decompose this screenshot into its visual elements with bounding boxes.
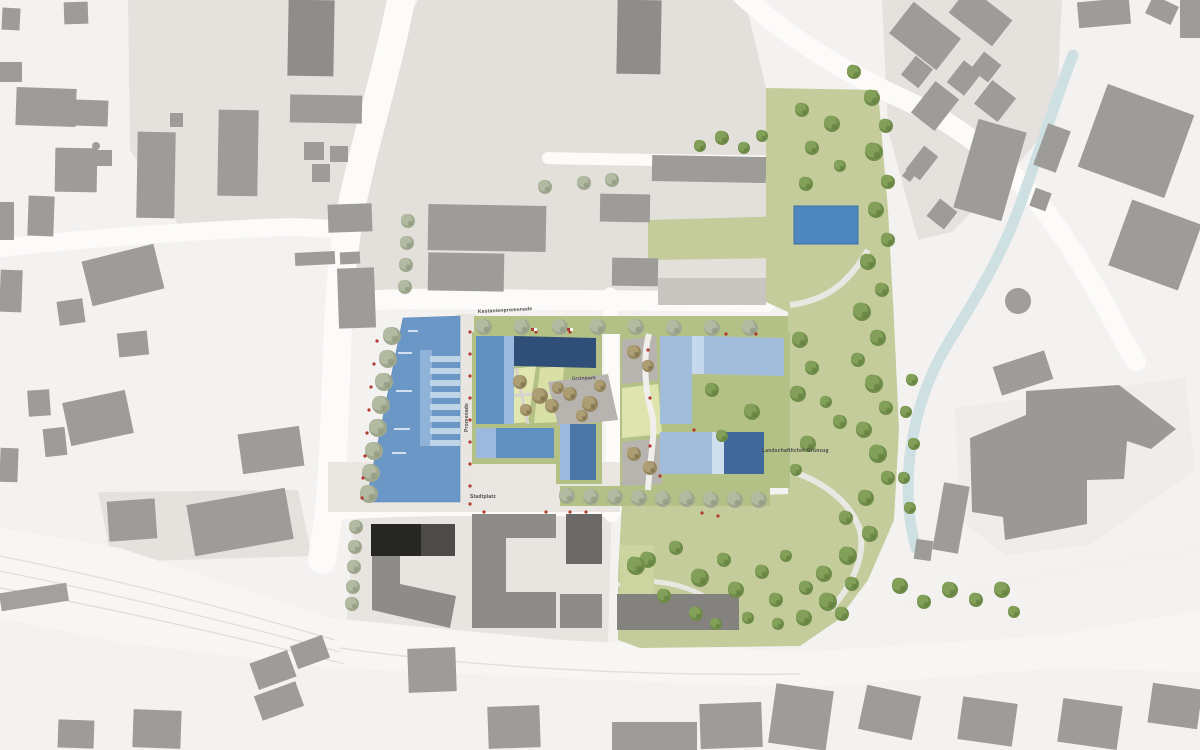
street-tree	[369, 419, 387, 437]
context-building	[337, 267, 376, 328]
street-tree	[401, 214, 415, 228]
street-tree	[400, 236, 414, 250]
context-building	[70, 99, 109, 126]
red-marker-dot	[700, 511, 703, 514]
context-building	[914, 539, 934, 561]
street-tree	[655, 491, 671, 507]
courtyard-tree	[642, 360, 654, 372]
context-building	[55, 148, 98, 193]
street-tree	[365, 442, 383, 460]
street-tree	[559, 488, 575, 504]
context-building	[290, 94, 362, 123]
context-building	[58, 719, 95, 748]
red-marker-dot	[468, 502, 471, 505]
street-tree	[345, 597, 359, 611]
context-building	[612, 722, 697, 750]
street-tree	[628, 319, 644, 335]
courtyard-tree	[576, 410, 588, 422]
red-marker-dot	[468, 440, 471, 443]
street-tree	[605, 173, 619, 187]
street-tree	[372, 396, 390, 414]
light-blue-l-building	[660, 336, 692, 424]
context-building	[658, 278, 766, 305]
red-marker-dot	[468, 352, 471, 355]
context-building	[487, 705, 540, 749]
courtyard-tree	[643, 461, 657, 475]
red-marker-dot	[361, 476, 364, 479]
context-building	[1077, 0, 1131, 28]
red-marker-dot	[544, 510, 547, 513]
context-building	[428, 252, 505, 291]
street-tree	[590, 319, 606, 335]
context-building	[27, 196, 54, 237]
courtyard-tree	[552, 382, 564, 394]
street-tree	[666, 320, 682, 336]
red-marker-dot	[716, 514, 719, 517]
street-tree	[398, 280, 412, 294]
street-tree	[727, 492, 743, 508]
context-building	[328, 203, 373, 233]
context-building	[170, 113, 183, 127]
red-marker-dot	[375, 339, 378, 342]
context-building	[616, 0, 661, 74]
context-building	[0, 62, 22, 82]
red-marker-dot	[658, 474, 661, 477]
context-building	[96, 150, 112, 166]
courtyard-tree	[627, 447, 641, 461]
courtyard-tree	[520, 404, 532, 416]
street-tree	[476, 319, 492, 335]
context-building	[1057, 698, 1123, 750]
courtyard-tree	[627, 345, 641, 359]
context-building	[287, 0, 334, 76]
street-tree	[703, 492, 719, 508]
street-tree	[583, 489, 599, 505]
red-marker-dot	[367, 408, 370, 411]
site-plan-canvas: Kastanienpromenade Promenade Grünpark La…	[0, 0, 1200, 750]
street-tree	[552, 319, 568, 335]
context-building	[652, 155, 766, 183]
context-building	[0, 270, 23, 313]
street-tree	[514, 319, 530, 335]
red-marker-dot	[482, 510, 485, 513]
street-tree	[538, 180, 552, 194]
context-building	[15, 87, 76, 127]
context-building	[699, 702, 763, 749]
red-marker-dot	[648, 444, 651, 447]
courtyard-tree	[594, 380, 606, 392]
red-marker-dot	[646, 348, 649, 351]
street-tree	[375, 373, 393, 391]
context-building	[132, 709, 181, 749]
street-tree	[383, 327, 401, 345]
street-tree	[346, 580, 360, 594]
context-building	[768, 683, 834, 750]
courtyard-tree	[582, 396, 598, 412]
red-marker-dot	[724, 332, 727, 335]
street-tree	[751, 492, 767, 508]
context-building	[27, 389, 51, 416]
red-marker-dot	[360, 496, 363, 499]
context-building	[238, 426, 305, 474]
label-south-plaza: Stadtplatz	[470, 494, 496, 500]
context-building	[0, 202, 14, 240]
red-marker-dot	[369, 385, 372, 388]
context-building	[64, 2, 89, 25]
street-tree	[349, 520, 363, 534]
red-marker-dot	[365, 431, 368, 434]
courtyard-tree	[545, 399, 559, 413]
context-building	[612, 258, 658, 287]
context-building	[295, 251, 336, 266]
context-building	[340, 251, 361, 264]
street-tree	[347, 560, 361, 574]
navy-building	[514, 336, 596, 368]
context-building	[407, 647, 457, 693]
courtyard-tree	[532, 388, 548, 404]
street-tree	[362, 464, 380, 482]
red-marker-dot	[468, 396, 471, 399]
context-building	[957, 696, 1017, 746]
street-tree	[348, 540, 362, 554]
red-marker-dot	[692, 428, 695, 431]
context-building	[312, 164, 330, 182]
street-tree	[607, 489, 623, 505]
context-building	[600, 194, 650, 223]
black-building	[371, 524, 421, 556]
context-building	[1147, 683, 1200, 730]
red-marker-dot	[468, 484, 471, 487]
context-building	[136, 132, 175, 219]
courtyard-tree	[513, 375, 527, 389]
red-marker-dot	[648, 396, 651, 399]
street-tree	[631, 490, 647, 506]
roundabout	[1005, 288, 1031, 314]
street-tree	[399, 258, 413, 272]
street-tree	[577, 176, 591, 190]
red-marker-dot	[568, 510, 571, 513]
street-tree	[360, 485, 378, 503]
street-tree	[704, 320, 720, 336]
courtyard-tree	[563, 387, 577, 401]
context-building	[428, 204, 547, 252]
context-building	[330, 146, 348, 162]
context-building	[43, 427, 68, 457]
site-plan-map: Kastanienpromenade Promenade Grünpark La…	[0, 0, 1200, 750]
context-building	[0, 448, 19, 483]
label-central-courtyard: Grünpark	[572, 375, 596, 382]
red-marker-dot	[363, 454, 366, 457]
context-building	[1, 8, 20, 31]
context-building	[217, 110, 258, 197]
red-marker-dot	[468, 330, 471, 333]
red-marker-dot	[468, 374, 471, 377]
context-building	[107, 498, 158, 541]
context-building	[56, 298, 85, 325]
context-building	[1180, 0, 1200, 38]
red-marker-dot	[468, 462, 471, 465]
street-tree	[679, 491, 695, 507]
context-building	[304, 142, 324, 160]
street-tree	[379, 350, 397, 368]
red-marker-dot	[754, 332, 757, 335]
label-west-promenade: Promenade	[464, 403, 470, 432]
pond	[794, 206, 858, 244]
mixed-blue-building	[660, 432, 712, 474]
label-landscape-park: Landschaftlicher Grünzug	[762, 448, 829, 454]
context-building	[117, 330, 149, 357]
red-marker-dot	[584, 510, 587, 513]
red-marker-dot	[372, 362, 375, 365]
